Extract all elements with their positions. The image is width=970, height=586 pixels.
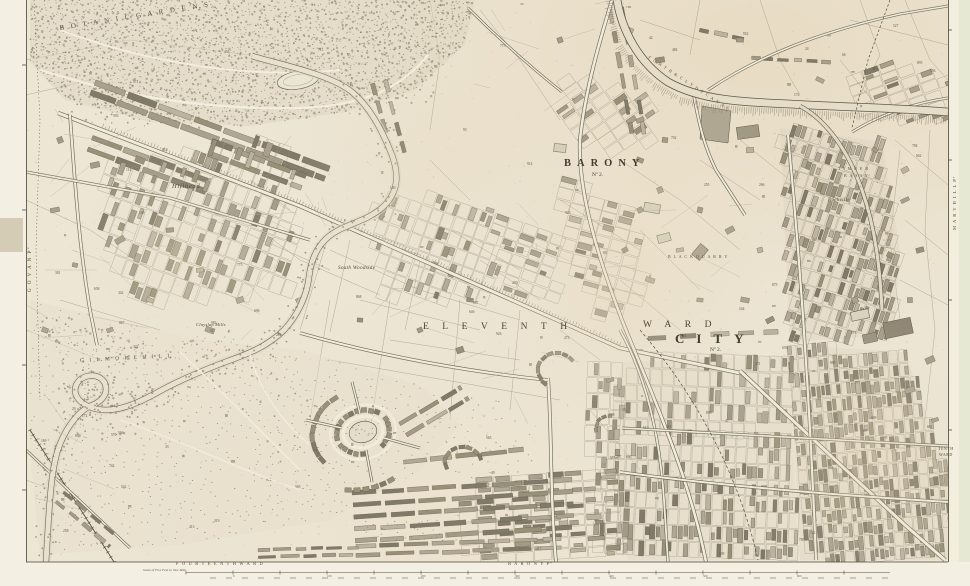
svg-text:100: 100 xyxy=(327,574,332,578)
svg-text:F O U R T E E N T H W A R D: F O U R T E E N T H W A R D xyxy=(176,561,264,566)
svg-text:200: 200 xyxy=(421,574,426,578)
svg-text:500: 500 xyxy=(703,574,708,578)
svg-text:Scale of Five Feet to One Mile: Scale of Five Feet to One Mile xyxy=(143,568,186,572)
svg-text:TENTH: TENTH xyxy=(938,446,954,451)
svg-text:300: 300 xyxy=(515,574,520,578)
svg-text:G O V A N Pº: G O V A N Pº xyxy=(27,246,33,292)
svg-text:400: 400 xyxy=(609,574,614,578)
svg-text:B A R O N Y Pº: B A R O N Y Pº xyxy=(508,561,553,566)
svg-text:M A R Y H I L L Pº: M A R Y H I L L Pº xyxy=(952,176,957,230)
svg-text:WARD: WARD xyxy=(939,452,953,457)
svg-text:600: 600 xyxy=(797,574,802,578)
